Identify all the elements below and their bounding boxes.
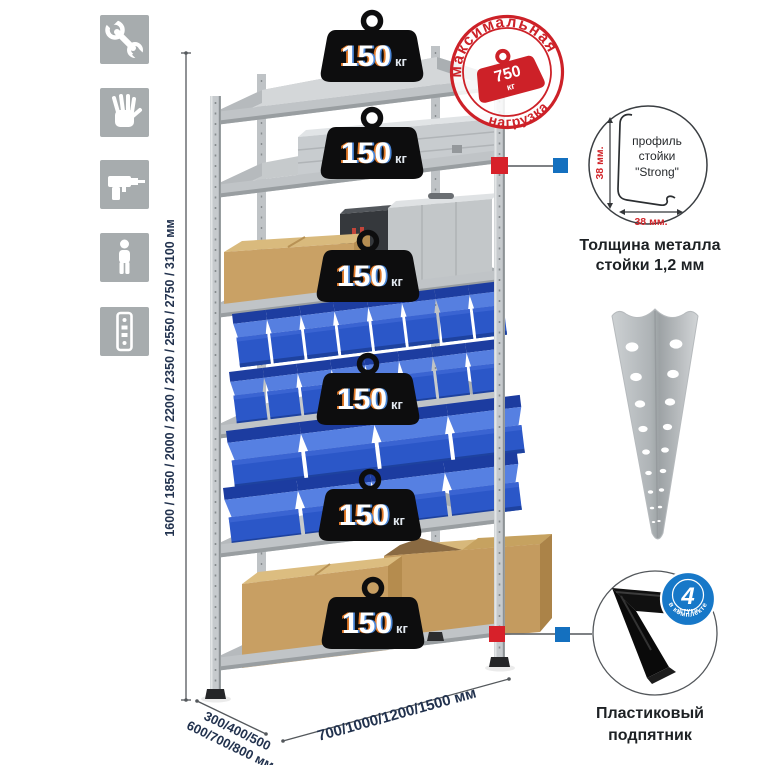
- plastic-foot-front-left: [205, 689, 226, 699]
- blue-marker-bottom: [555, 627, 570, 642]
- svg-text:150: 150: [342, 607, 392, 640]
- svg-text:кг: кг: [395, 54, 408, 69]
- weight-level-2: 150 150 150 кг: [321, 110, 424, 180]
- scene: 150 150 150 кг 150 150 150 кг 150 150 15…: [0, 0, 765, 765]
- plastic-foot-circle: 4 штуки в комплекте: [593, 571, 717, 695]
- profile-dim-horizontal: 38 мм.: [634, 216, 667, 228]
- foot-caption-line2: подпятник: [608, 727, 693, 744]
- profile-label-line1: профиль: [632, 134, 682, 148]
- profile-label-line3: "Strong": [635, 165, 679, 179]
- profile-label-line2: стойки: [639, 149, 676, 163]
- svg-text:кг: кг: [391, 397, 404, 412]
- angle-post-image: [612, 309, 698, 539]
- profile-caption-line2: стойки 1,2 мм: [596, 257, 705, 274]
- svg-text:150: 150: [341, 137, 391, 170]
- blue-marker-top: [553, 158, 568, 173]
- svg-text:кг: кг: [391, 274, 404, 289]
- height-dimension: 1600 / 1850 / 2000 / 2200 / 2350 / 2550 …: [163, 51, 191, 702]
- depth-dimension: 300/400/500 600/700/800 мм: [184, 699, 283, 765]
- red-marker-top: [491, 157, 508, 174]
- height-label: 1600 / 1850 / 2000 / 2200 / 2350 / 2550 …: [163, 219, 177, 536]
- svg-text:150: 150: [339, 499, 389, 532]
- svg-text:150: 150: [337, 383, 387, 416]
- profile-caption-line1: Толщина металла: [579, 237, 720, 254]
- svg-text:кг: кг: [396, 621, 409, 636]
- red-marker-bottom: [489, 626, 505, 642]
- product-infographic: 150 150 150 кг 150 150 150 кг 150 150 15…: [0, 0, 765, 765]
- badge-number: 4: [680, 583, 694, 610]
- quantity-badge: 4 штуки в комплекте: [661, 572, 715, 626]
- foot-caption-line1: Пластиковый: [596, 705, 704, 722]
- weight-level-1: 150 150 150 кг: [321, 13, 424, 83]
- profile-dim-vertical: 38 мм.: [594, 146, 606, 179]
- plastic-foot-back-right: [427, 632, 444, 641]
- width-label: 700/1000/1200/1500 мм: [316, 685, 479, 745]
- svg-text:150: 150: [341, 40, 391, 73]
- svg-text:кг: кг: [393, 513, 406, 528]
- width-dimension: 700/1000/1200/1500 мм: [281, 677, 511, 745]
- svg-text:150: 150: [337, 260, 387, 293]
- svg-text:кг: кг: [395, 151, 408, 166]
- profile-detail-circle: 38 мм. 38 мм. профиль стойки "Strong": [589, 106, 707, 228]
- plastic-foot-front-right: [489, 657, 510, 667]
